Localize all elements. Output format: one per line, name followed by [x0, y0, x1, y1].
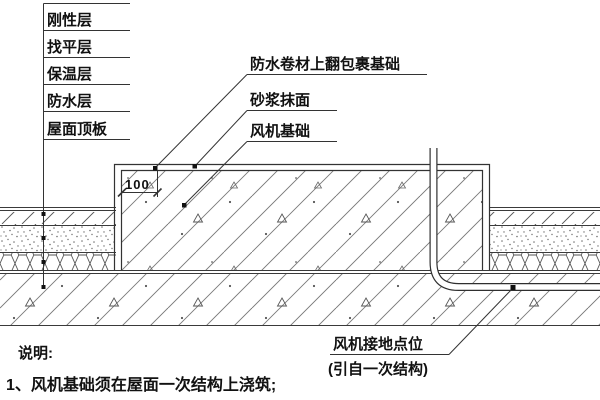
notes-heading: 说明:: [18, 344, 53, 362]
rigid-layer-right: [490, 212, 600, 225]
leveling-layer-label: 找平层: [47, 38, 92, 56]
note-item-1: 1、风机基础须在屋面一次结构上浇筑;: [6, 375, 276, 394]
fan-foundation-callout: 风机基础: [250, 122, 310, 140]
leveling-layer-left: [0, 226, 116, 252]
grounding-point-dot: [511, 285, 516, 290]
leveling-layer-right: [490, 226, 600, 252]
dimension-100-label: 100: [125, 177, 150, 192]
grounding-point-callout-line2: (引自一次结构): [328, 360, 428, 378]
slab-concrete-hatch: [0, 274, 600, 325]
fan-foundation-body: [122, 171, 483, 271]
roof-slab-label: 屋面顶板: [47, 120, 108, 138]
insulation-layer-label: 保温层: [46, 65, 92, 83]
membrane-wrap-callout: 防水卷材上翻包裹基础: [250, 55, 400, 73]
foundation-concrete-hatch: [122, 171, 483, 271]
waterproof-layer-label: 防水层: [47, 92, 92, 110]
roof-structural-slab: [0, 274, 600, 325]
mortar-finish-callout: 砂浆抹面: [250, 91, 310, 109]
grounding-point-callout-line1: 风机接地点位: [333, 335, 423, 353]
insulation-layer-left: [0, 253, 116, 270]
rigid-layer-left: [0, 212, 116, 225]
roof-fan-foundation-detail: 100 刚性层 找平层 保温层 防水层 屋面顶板 防水卷材上翻包裹基础 砂浆抹面…: [0, 0, 600, 400]
rigid-layer-label: 刚性层: [47, 11, 92, 29]
detail-drawing-canvas: 100 刚性层 找平层 保温层 防水层 屋面顶板 防水卷材上翻包裹基础 砂浆抹面…: [0, 0, 600, 400]
insulation-layer-right: [490, 253, 600, 270]
